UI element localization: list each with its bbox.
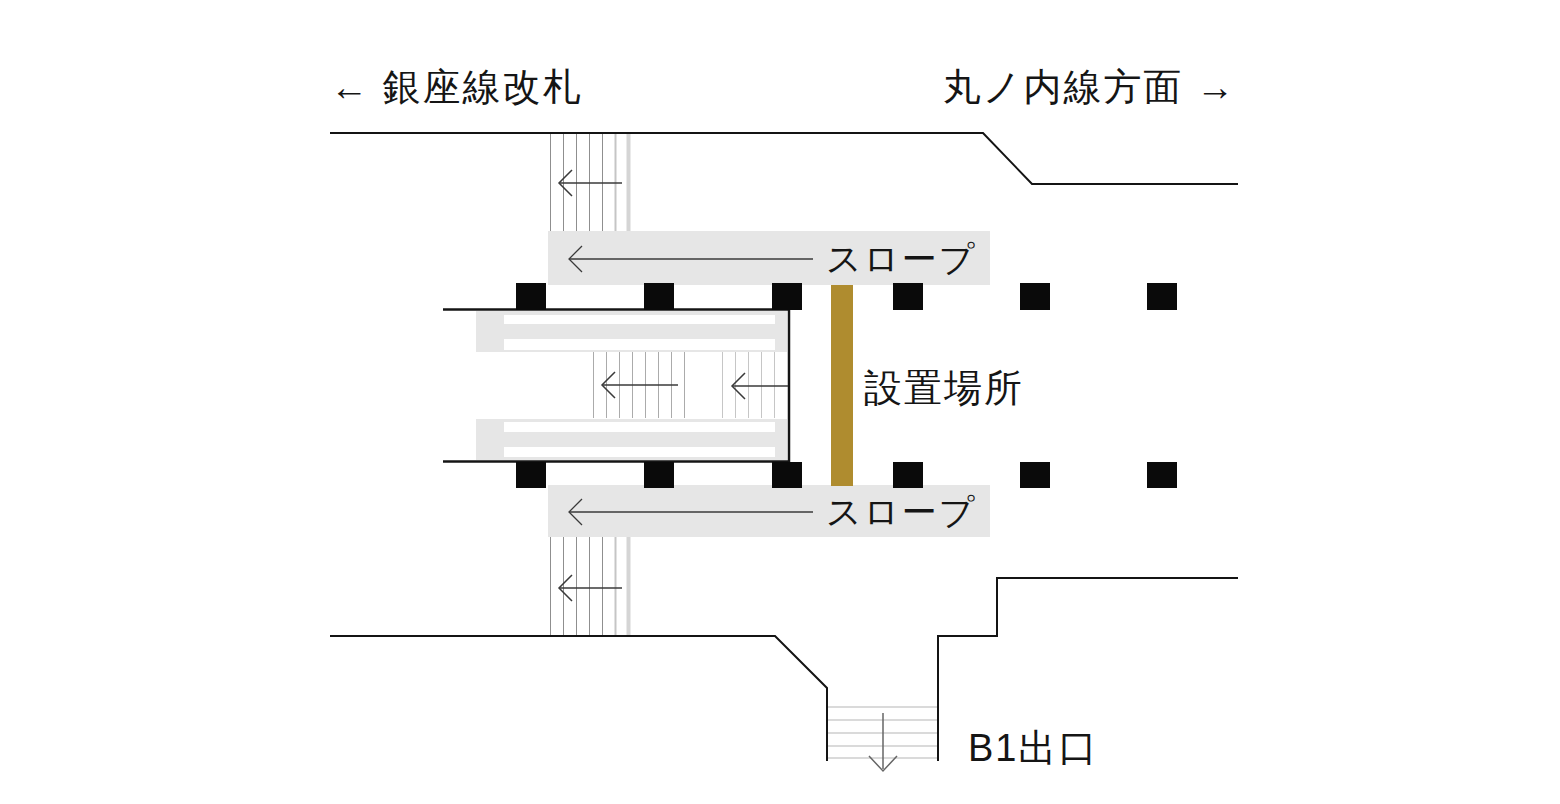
pillar: [893, 462, 923, 488]
b1-exit-arrow-icon: [869, 713, 897, 771]
escalator-housing-bottom: [476, 419, 787, 460]
label-installation-location: 設置場所: [864, 367, 1024, 409]
label-b1-exit: B1出口: [968, 727, 1098, 769]
arrow-stairs-bottom-icon: [559, 575, 622, 601]
label-ginza-line-gate: ← 銀座線改札: [330, 66, 583, 108]
pillar: [772, 283, 802, 310]
pillar: [644, 283, 674, 310]
stairs-bottom: [551, 537, 629, 635]
pillar: [516, 283, 546, 310]
escalator-housing-top: [476, 311, 787, 352]
pillar: [1020, 462, 1050, 488]
station-map: ← 銀座線改札 丸ノ内線方面 → スロープ スロープ 設置場所 B1出口: [0, 0, 1560, 804]
pillar: [1147, 283, 1177, 310]
pillar: [644, 462, 674, 488]
arrow-central-stairs-right-icon: [732, 373, 788, 399]
pillar: [1147, 462, 1177, 488]
installation-location-bar: [831, 285, 853, 486]
pillar: [516, 462, 546, 488]
arrow-central-stairs-left-icon: [602, 372, 678, 398]
pillar: [1020, 283, 1050, 310]
label-ramp-top: スロープ: [826, 239, 976, 278]
pillar: [893, 283, 923, 310]
arrow-stairs-top-icon: [559, 170, 622, 196]
station-map-canvas: ← 銀座線改札 丸ノ内線方面 → スロープ スロープ 設置場所 B1出口: [0, 0, 1560, 804]
label-marunouchi-direction: 丸ノ内線方面 →: [943, 66, 1236, 108]
label-ramp-bottom: スロープ: [826, 492, 976, 531]
pillar: [772, 462, 802, 488]
